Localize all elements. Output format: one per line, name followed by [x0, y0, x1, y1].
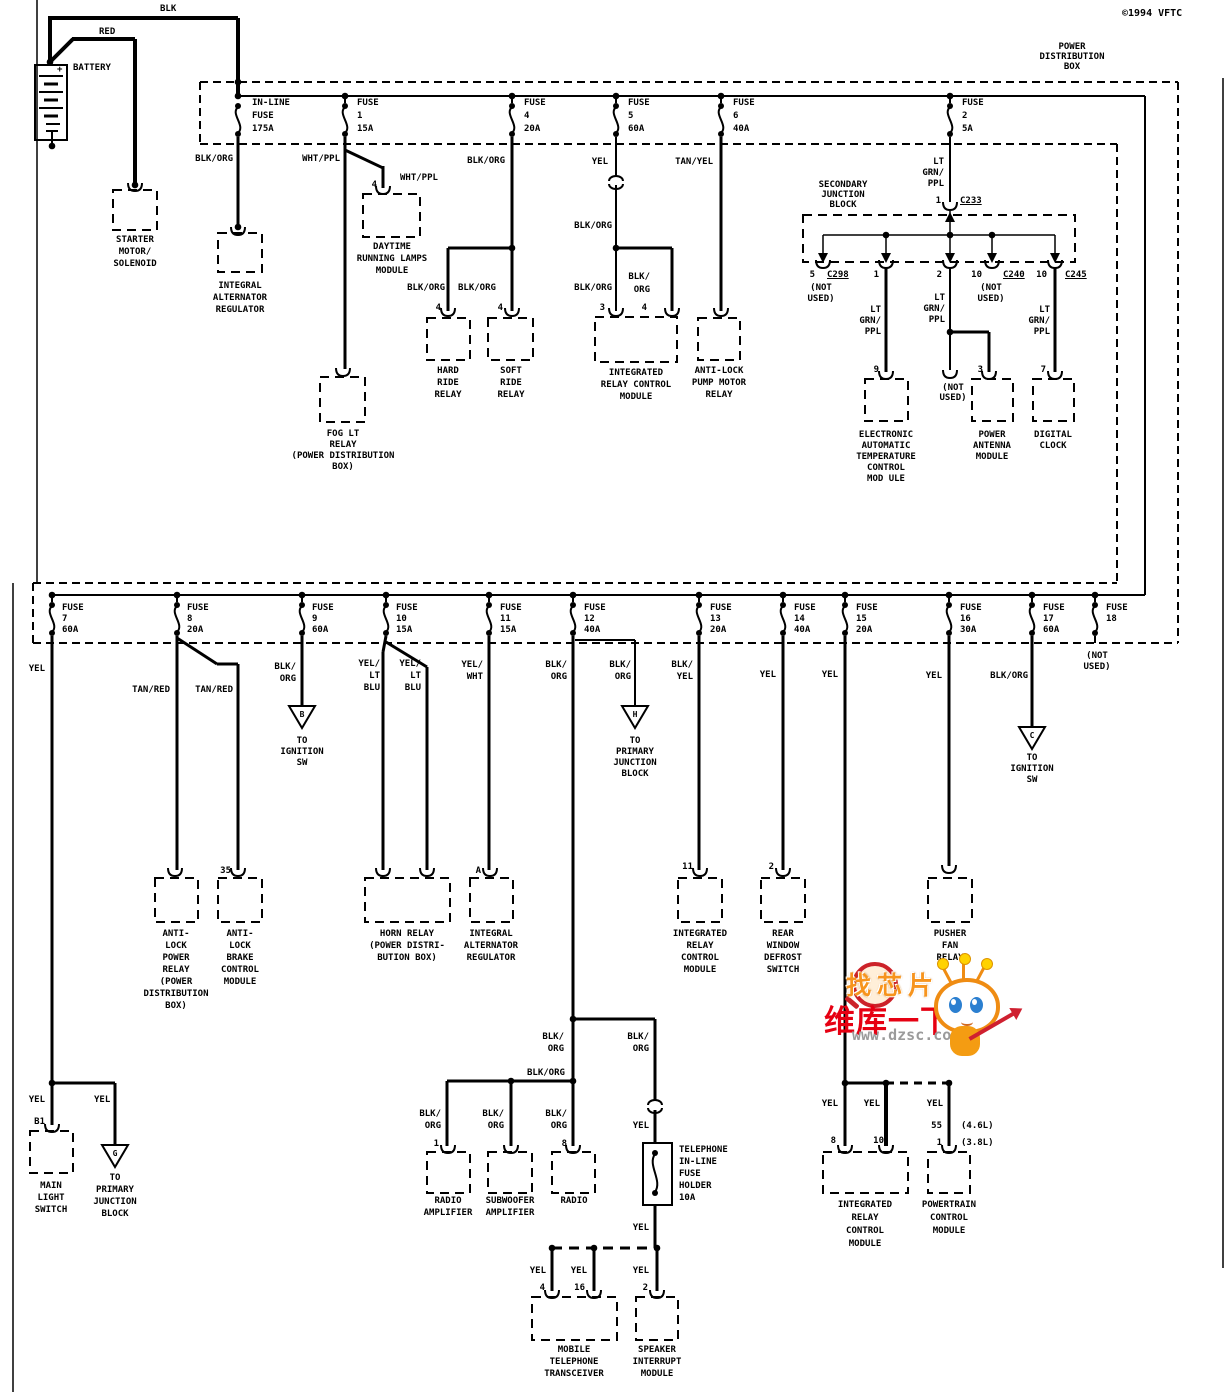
pin-connector — [943, 202, 957, 210]
component-box — [761, 878, 805, 922]
fuse-element — [384, 606, 389, 632]
pin-connector — [336, 368, 350, 376]
fuse-element — [510, 107, 515, 133]
component-box — [488, 318, 533, 360]
junction-dot — [946, 592, 953, 599]
junction-dot — [1092, 592, 1099, 599]
component-box — [972, 379, 1013, 421]
component-box — [636, 1297, 678, 1340]
fuse-element — [50, 606, 55, 632]
component-box — [427, 1152, 470, 1193]
junction-dot — [549, 1245, 556, 1252]
mascot-eye — [949, 997, 962, 1013]
junction-dot — [947, 93, 954, 100]
component-box — [552, 1152, 595, 1193]
junction-dot — [570, 592, 577, 599]
component-box — [532, 1297, 617, 1340]
junction-dot — [570, 1016, 577, 1023]
junction-dot — [947, 232, 954, 239]
triangle-letter: H — [633, 710, 638, 719]
junction-dot — [570, 1078, 577, 1085]
junction-dot — [342, 93, 349, 100]
junction-dot — [591, 1245, 598, 1252]
component-box — [320, 377, 365, 422]
junction-dot — [613, 245, 620, 252]
component-box — [218, 878, 262, 922]
junction-dot — [235, 224, 242, 231]
component-box — [678, 878, 722, 922]
up-arrow — [945, 212, 955, 222]
junction-dot — [47, 59, 54, 66]
triangle-letter: B — [300, 710, 305, 719]
wire — [177, 638, 217, 664]
pin-connector — [943, 370, 957, 378]
inline-connector — [609, 176, 623, 181]
fuse-element — [1093, 606, 1098, 632]
watermark-mascot-icon — [922, 960, 1022, 1064]
fuse-element — [487, 606, 492, 632]
junction-dot — [842, 1080, 849, 1087]
pin-connector — [879, 371, 893, 379]
component-box — [803, 215, 1075, 262]
mascot-body — [950, 1026, 980, 1056]
junction-dot — [654, 1245, 661, 1252]
component-box — [928, 1152, 970, 1193]
junction-dot — [383, 592, 390, 599]
triangle-letter: G — [113, 1149, 118, 1158]
mascot-antenna-ball — [937, 958, 949, 970]
fuse-element — [947, 606, 952, 632]
pin-connector — [168, 868, 182, 876]
junction-dot — [718, 93, 725, 100]
fuse-element — [175, 606, 180, 632]
component-box — [865, 379, 908, 421]
junction-dot — [946, 1080, 953, 1087]
junction-dot — [989, 232, 996, 239]
mascot-antenna-ball — [981, 958, 993, 970]
pin-connector — [942, 865, 956, 873]
mascot-eye — [970, 997, 983, 1013]
fuse-element — [653, 1154, 658, 1192]
mascot-mouth — [961, 1018, 973, 1026]
component-box — [823, 1152, 908, 1193]
component-box — [427, 318, 470, 360]
wiring-svg: BHCG — [0, 0, 1232, 1392]
component-box — [218, 233, 262, 272]
fuse-element — [948, 107, 953, 133]
junction-dot — [1029, 592, 1036, 599]
junction-dot — [299, 592, 306, 599]
wire — [50, 39, 73, 62]
junction-dot — [486, 592, 493, 599]
junction-dot — [883, 232, 890, 239]
junction-dot — [509, 245, 516, 252]
inline-connector — [648, 1100, 662, 1105]
junction-dot — [49, 592, 56, 599]
wiring-diagram-page: BHCG ©1994 VFTCPOWERDISTRIBUTIONBOXBLKRE… — [0, 0, 1232, 1392]
fuse-element — [236, 107, 241, 133]
junction-dot — [174, 592, 181, 599]
fuse-element — [719, 107, 724, 133]
junction-dot — [49, 143, 56, 150]
fuse-element — [843, 606, 848, 632]
junction-dot — [842, 592, 849, 599]
junction-dot — [947, 329, 954, 336]
fuse-element — [614, 107, 619, 133]
component-box — [488, 1152, 532, 1193]
component-box — [363, 194, 420, 237]
component-box — [155, 878, 198, 922]
component-box — [365, 878, 450, 922]
fuse-element — [300, 606, 305, 632]
junction-dot — [508, 1078, 515, 1085]
component-box — [698, 318, 740, 360]
pin-connector — [1048, 371, 1062, 379]
junction-dot — [696, 592, 703, 599]
junction-dot — [613, 93, 620, 100]
watermark: 找芯片 维库一下 www.dzsc.com — [824, 956, 1029, 1066]
junction-dot — [132, 182, 139, 189]
component-box — [1033, 379, 1074, 421]
component-box — [470, 878, 513, 922]
fuse-element — [1030, 606, 1035, 632]
component-box — [113, 190, 157, 230]
junction-dot — [883, 1080, 890, 1087]
junction-dot — [235, 93, 242, 100]
component-box — [595, 317, 677, 362]
wire — [345, 150, 383, 168]
component-box — [30, 1131, 73, 1173]
fuse-element — [343, 107, 348, 133]
fuse-element — [697, 606, 702, 632]
triangle-letter: C — [1030, 731, 1035, 740]
pin-connector — [982, 371, 996, 379]
junction-dot — [235, 79, 242, 86]
junction-dot — [49, 1080, 56, 1087]
component-box — [928, 878, 972, 922]
mascot-antenna-ball — [959, 953, 971, 965]
fuse-element — [571, 606, 576, 632]
junction-dot — [780, 592, 787, 599]
junction-dot — [509, 93, 516, 100]
fuse-element — [781, 606, 786, 632]
wire — [386, 642, 427, 667]
